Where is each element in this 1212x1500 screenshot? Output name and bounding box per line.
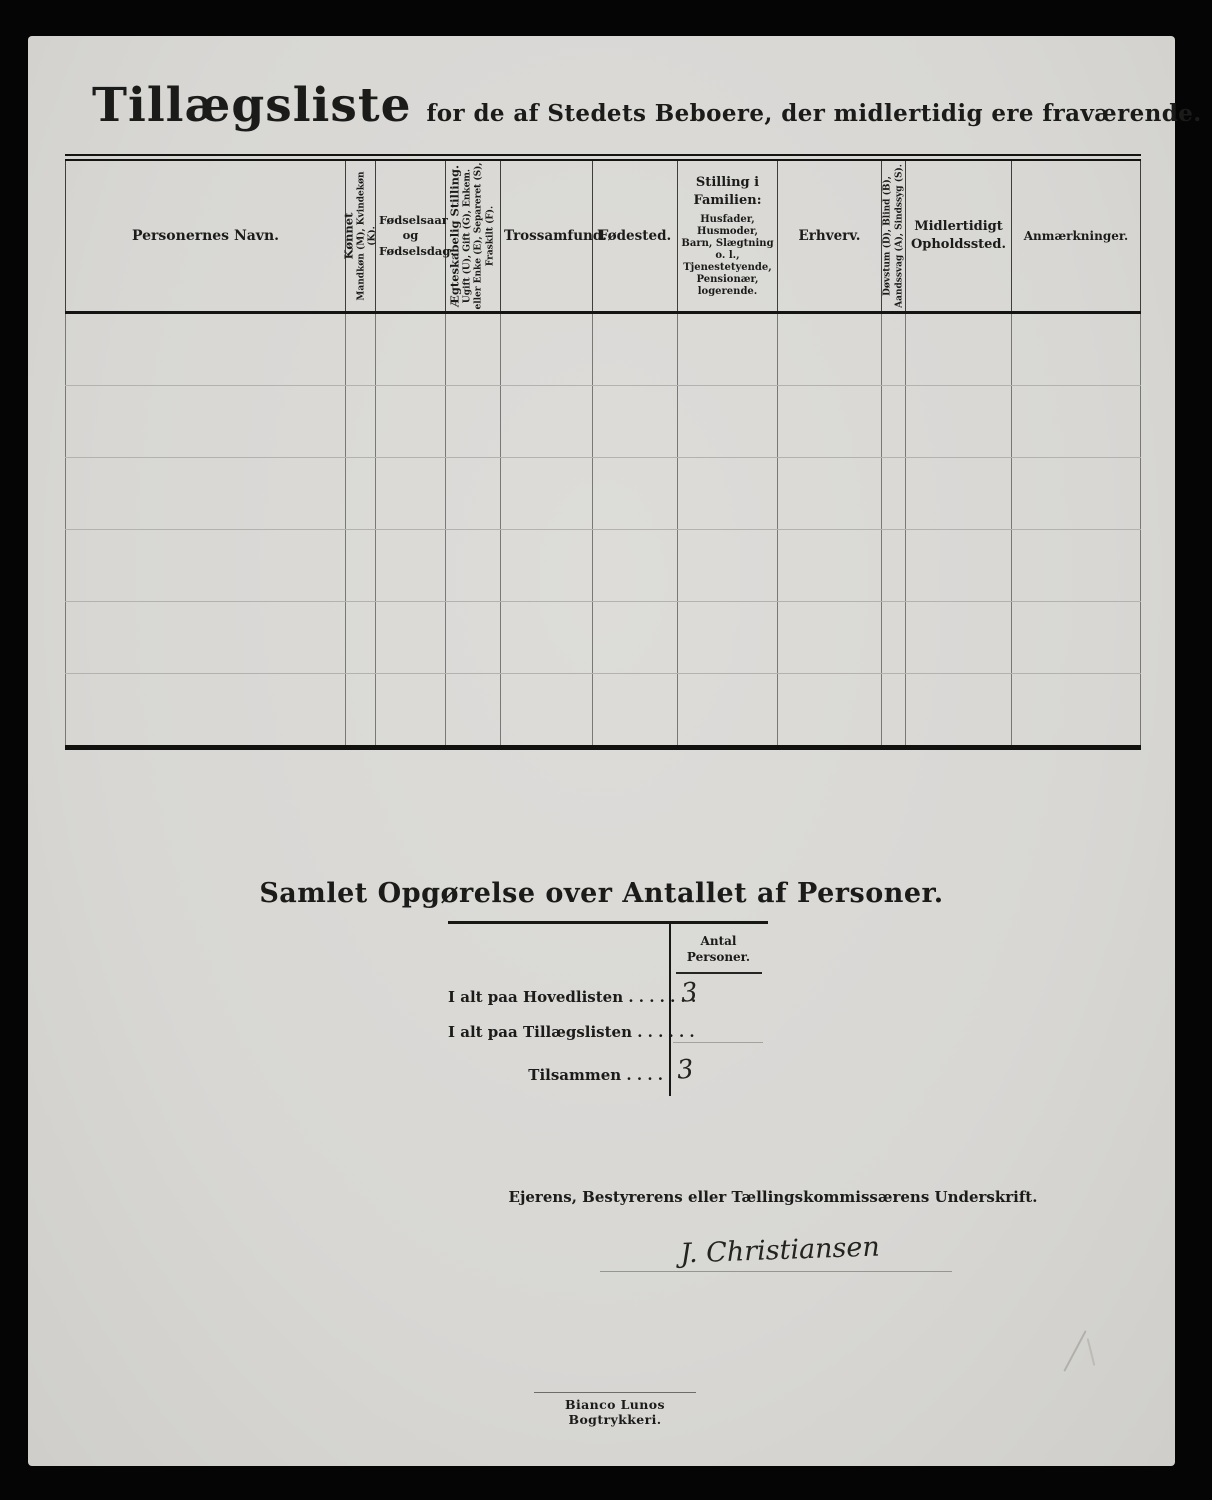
col-label: Fødselsaar og Fødselsdag. <box>379 213 442 260</box>
summary-row-label-hovedlisten: I alt paa Hovedlisten . . . . . . . <box>448 988 663 1006</box>
empty-cell <box>906 674 1012 748</box>
empty-cell <box>1012 602 1141 674</box>
col-header-anmaerkninger: Anmærkninger. <box>1012 158 1141 313</box>
col-sublabel: Husfader, Husmoder, Barn, Slægtning o. l… <box>681 214 774 298</box>
col-label: Erhverv. <box>781 227 878 245</box>
col-header-personernes-navn: Personernes Navn. <box>66 158 346 313</box>
signature-handwriting: J. Christiansen <box>640 1230 921 1271</box>
col-label: Stilling i Familien: <box>681 174 774 209</box>
col-label: Anmærkninger. <box>1015 228 1137 244</box>
empty-cell <box>593 674 678 748</box>
empty-cell <box>346 530 376 602</box>
vertical-label: Døvstum (D), Blind (B), Aandssvag (A), S… <box>882 161 905 311</box>
printer-credit-rule <box>534 1392 696 1393</box>
empty-cell <box>66 530 346 602</box>
empty-cell <box>66 386 346 458</box>
empty-cell <box>346 602 376 674</box>
empty-cell <box>66 674 346 748</box>
scanned-page: Tillægsliste for de af Stedets Beboere, … <box>28 36 1175 1466</box>
summary-row-label-tillaegslisten: I alt paa Tillægslisten . . . . . . <box>448 1023 663 1041</box>
empty-cell <box>678 602 778 674</box>
title-main: Tillægsliste <box>92 78 411 133</box>
col-header-erhverv: Erhverv. <box>778 158 882 313</box>
summary-heading: Samlet Opgørelse over Antallet af Person… <box>28 878 1175 909</box>
empty-cell <box>906 386 1012 458</box>
empty-cell <box>778 458 882 530</box>
empty-cell <box>501 674 593 748</box>
table-row <box>66 386 1141 458</box>
empty-cell <box>346 386 376 458</box>
empty-cell <box>593 530 678 602</box>
empty-cell <box>501 386 593 458</box>
empty-cell <box>593 602 678 674</box>
signature-line <box>600 1271 952 1272</box>
printer-credit: Bianco Lunos Bogtrykkeri. <box>520 1392 710 1427</box>
census-table-wrap: Personernes Navn. Kønnet Mandkøn (M), Kv… <box>65 154 1140 750</box>
table-row <box>66 674 1141 748</box>
empty-cell <box>678 458 778 530</box>
empty-cell <box>593 313 678 386</box>
empty-cell <box>66 602 346 674</box>
empty-cell <box>778 386 882 458</box>
empty-cell <box>446 386 501 458</box>
empty-cell <box>778 313 882 386</box>
empty-cell <box>501 313 593 386</box>
col-header-stilling-i-familien: Stilling i Familien: Husfader, Husmoder,… <box>678 158 778 313</box>
empty-cell <box>882 530 906 602</box>
empty-cell <box>678 313 778 386</box>
pen-mark <box>1087 1338 1096 1366</box>
empty-cell <box>346 458 376 530</box>
summary-col-header: Antal Personer. <box>669 934 768 965</box>
empty-cell <box>778 530 882 602</box>
col-label: Fødested. <box>596 227 674 245</box>
col-label: Trossamfund. <box>504 227 589 245</box>
col-label: Midlertidigt Opholdssted. <box>909 218 1008 253</box>
empty-cell <box>1012 530 1141 602</box>
empty-cell <box>501 458 593 530</box>
empty-cell <box>376 602 446 674</box>
page-title: Tillægsliste for de af Stedets Beboere, … <box>92 78 1202 133</box>
empty-cell <box>593 458 678 530</box>
empty-cell <box>446 674 501 748</box>
title-subtitle: for de af Stedets Beboere, der midlertid… <box>426 100 1201 127</box>
summary-table: Antal Personer. I alt paa Hovedlisten . … <box>448 921 768 1106</box>
empty-cell <box>678 386 778 458</box>
empty-cell <box>446 458 501 530</box>
summary-col-header-rule <box>676 972 762 974</box>
empty-cell <box>906 313 1012 386</box>
empty-cell <box>1012 458 1141 530</box>
empty-cell <box>906 530 1012 602</box>
pen-mark <box>1063 1330 1086 1372</box>
empty-cell <box>678 674 778 748</box>
printer-credit-text: Bianco Lunos Bogtrykkeri. <box>520 1397 710 1427</box>
empty-cell <box>446 530 501 602</box>
empty-cell <box>1012 674 1141 748</box>
empty-cell <box>1012 386 1141 458</box>
col-header-midlertidigt-opholdssted: Midlertidigt Opholdssted. <box>906 158 1012 313</box>
empty-cell <box>376 386 446 458</box>
empty-cell <box>882 602 906 674</box>
vertical-label: Ægteskabelig Stilling. Ugift (U), Gift (… <box>449 161 498 311</box>
empty-cell <box>882 386 906 458</box>
table-row <box>66 313 1141 386</box>
empty-cell <box>66 313 346 386</box>
col-header-dovstum: Døvstum (D), Blind (B), Aandssvag (A), S… <box>882 158 906 313</box>
table-row <box>66 602 1141 674</box>
col-header-fodested: Fødested. <box>593 158 678 313</box>
signature-caption: Ejerens, Bestyrerens eller Tællingskommi… <box>458 1188 1088 1206</box>
empty-cell <box>501 530 593 602</box>
empty-cell <box>906 602 1012 674</box>
summary-value-tilsammen: 3 <box>676 1054 695 1085</box>
empty-cell <box>882 458 906 530</box>
empty-cell <box>376 530 446 602</box>
empty-cell <box>446 313 501 386</box>
empty-cell <box>882 674 906 748</box>
empty-cell <box>376 674 446 748</box>
summary-row-label-tilsammen: Tilsammen . . . . <box>448 1066 663 1084</box>
empty-cell <box>593 386 678 458</box>
empty-cell <box>501 602 593 674</box>
empty-cell <box>778 674 882 748</box>
census-table: Personernes Navn. Kønnet Mandkøn (M), Kv… <box>65 154 1141 750</box>
table-row <box>66 530 1141 602</box>
col-header-trossamfund: Trossamfund. <box>501 158 593 313</box>
empty-cell <box>66 458 346 530</box>
col-label: Personernes Navn. <box>69 227 342 246</box>
empty-cell <box>346 313 376 386</box>
empty-cell <box>882 313 906 386</box>
empty-cell <box>678 530 778 602</box>
header-row: Personernes Navn. Kønnet Mandkøn (M), Kv… <box>66 158 1141 313</box>
summary-sum-rule <box>673 1042 763 1043</box>
empty-cell <box>778 602 882 674</box>
empty-cell <box>346 674 376 748</box>
empty-cell <box>906 458 1012 530</box>
summary-value-hovedlisten: 3 <box>680 977 699 1008</box>
col-header-fodselsaar: Fødselsaar og Fødselsdag. <box>376 158 446 313</box>
col-header-aegteskabelig-stilling: Ægteskabelig Stilling. Ugift (U), Gift (… <box>446 158 501 313</box>
vertical-label: Kønnet Mandkøn (M), Kvindekøn (K). <box>342 161 379 311</box>
table-row <box>66 458 1141 530</box>
col-header-konnet: Kønnet Mandkøn (M), Kvindekøn (K). <box>346 158 376 313</box>
empty-cell <box>376 313 446 386</box>
empty-cell <box>376 458 446 530</box>
empty-cell <box>1012 313 1141 386</box>
empty-cell <box>446 602 501 674</box>
